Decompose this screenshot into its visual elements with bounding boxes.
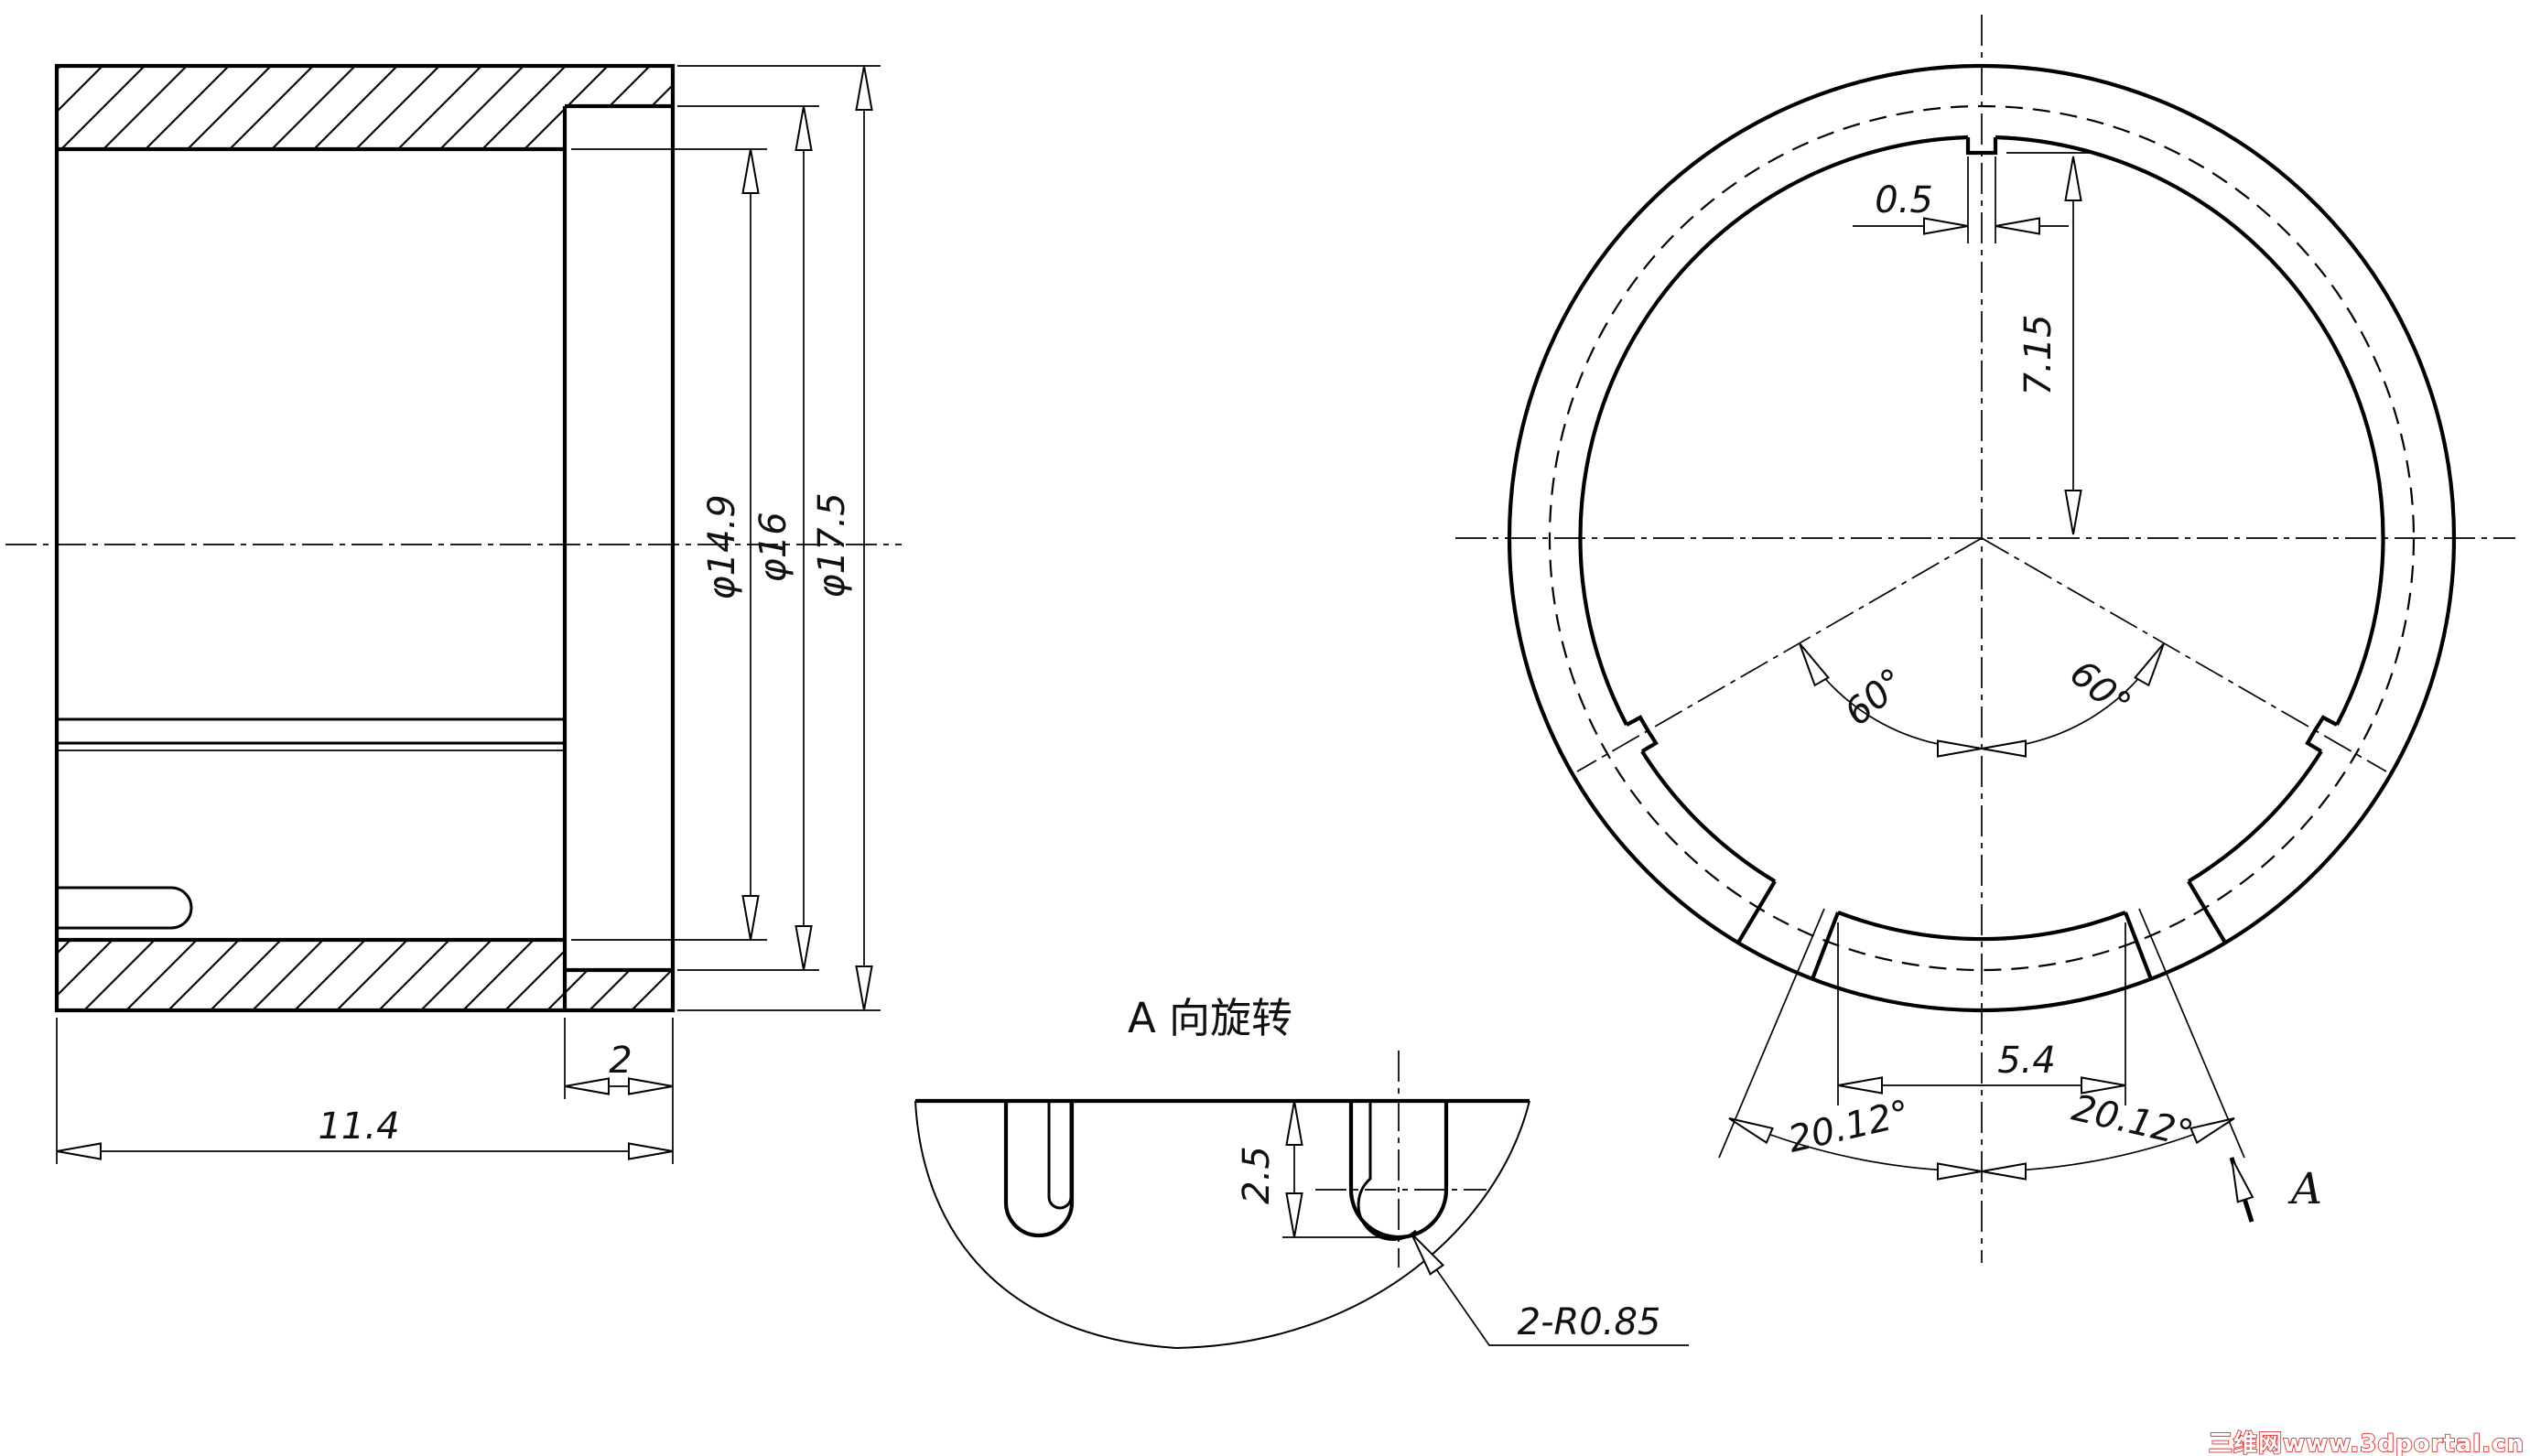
dim-flange-width: 2 <box>565 1018 673 1099</box>
end-slot-profile <box>57 888 191 928</box>
section-outline <box>57 66 673 1010</box>
dim-slot-depth: 2.5 <box>1236 1101 1408 1237</box>
front-ray-60-right <box>1982 538 2386 771</box>
dim-tab-angle-left-text: 60° <box>1837 661 1914 735</box>
hatch-area-bottom <box>57 940 673 1010</box>
dim-tab-width: 0.5 <box>1853 156 2069 243</box>
front-view: 0.5 7.15 60° 60° 5.4 <box>1455 15 2515 1263</box>
dim-counterbore-diameter: φ16 <box>677 106 819 970</box>
front-ray-60-left <box>1577 538 1982 771</box>
dim-tab-angle-left: 60° <box>1793 640 1982 757</box>
tab-60-right <box>2308 717 2337 751</box>
detail-view: A 向旋转 2.5 2-R0.85 <box>915 994 1689 1348</box>
leader-slot-radius-text: 2-R0.85 <box>1518 1301 1661 1343</box>
dim-counterbore-diameter-text: φ16 <box>752 512 795 582</box>
detail-view-title: A 向旋转 <box>1128 994 1292 1042</box>
drawing-sheet: 11.4 2 φ14.9 φ16 <box>0 0 2530 1456</box>
detail-left-slot-outer <box>1006 1101 1072 1235</box>
section-view: 11.4 2 φ14.9 φ16 <box>5 66 902 1164</box>
dim-bore-diameter-text: φ14.9 <box>701 494 743 599</box>
dim-slot-angle-right-text: 20.12° <box>2068 1087 2197 1156</box>
slot-left-edges <box>1738 881 1838 979</box>
dim-tab-width-text: 0.5 <box>1875 179 1933 221</box>
watermark-text: 三维网www.3dportal.cn <box>2209 1429 2525 1456</box>
tab-60-left <box>1627 717 1656 751</box>
dim-tab-angle-right-text: 60° <box>2061 653 2138 727</box>
view-direction-label: A <box>2287 1164 2322 1214</box>
dim-outer-diameter-text: φ17.5 <box>811 492 853 598</box>
dim-slot-depth-text: 2.5 <box>1236 1146 1278 1204</box>
dim-total-length-text: 11.4 <box>318 1105 399 1148</box>
dim-slot-gap-text: 5.4 <box>1997 1040 2056 1082</box>
dim-flange-width-text: 2 <box>609 1040 632 1082</box>
dim-tab-depth-text: 7.15 <box>2017 314 2060 395</box>
slot-right-edges <box>2125 881 2225 979</box>
detail-left-slot-inner <box>1049 1101 1071 1208</box>
detail-right-slot-inner <box>1358 1101 1416 1239</box>
engineering-drawing-canvas: 11.4 2 φ14.9 φ16 <box>0 0 2530 1456</box>
dim-total-length: 11.4 <box>57 1018 673 1164</box>
dim-tab-angle-right: 60° <box>1982 640 2170 757</box>
leader-slot-radius: 2-R0.85 <box>1405 1229 1689 1345</box>
view-direction-arrow-a: A <box>2224 1155 2322 1222</box>
dim-slot-angle-left-text: 20.12° <box>1784 1093 1913 1161</box>
dim-tab-depth: 7.15 <box>2006 153 2090 534</box>
